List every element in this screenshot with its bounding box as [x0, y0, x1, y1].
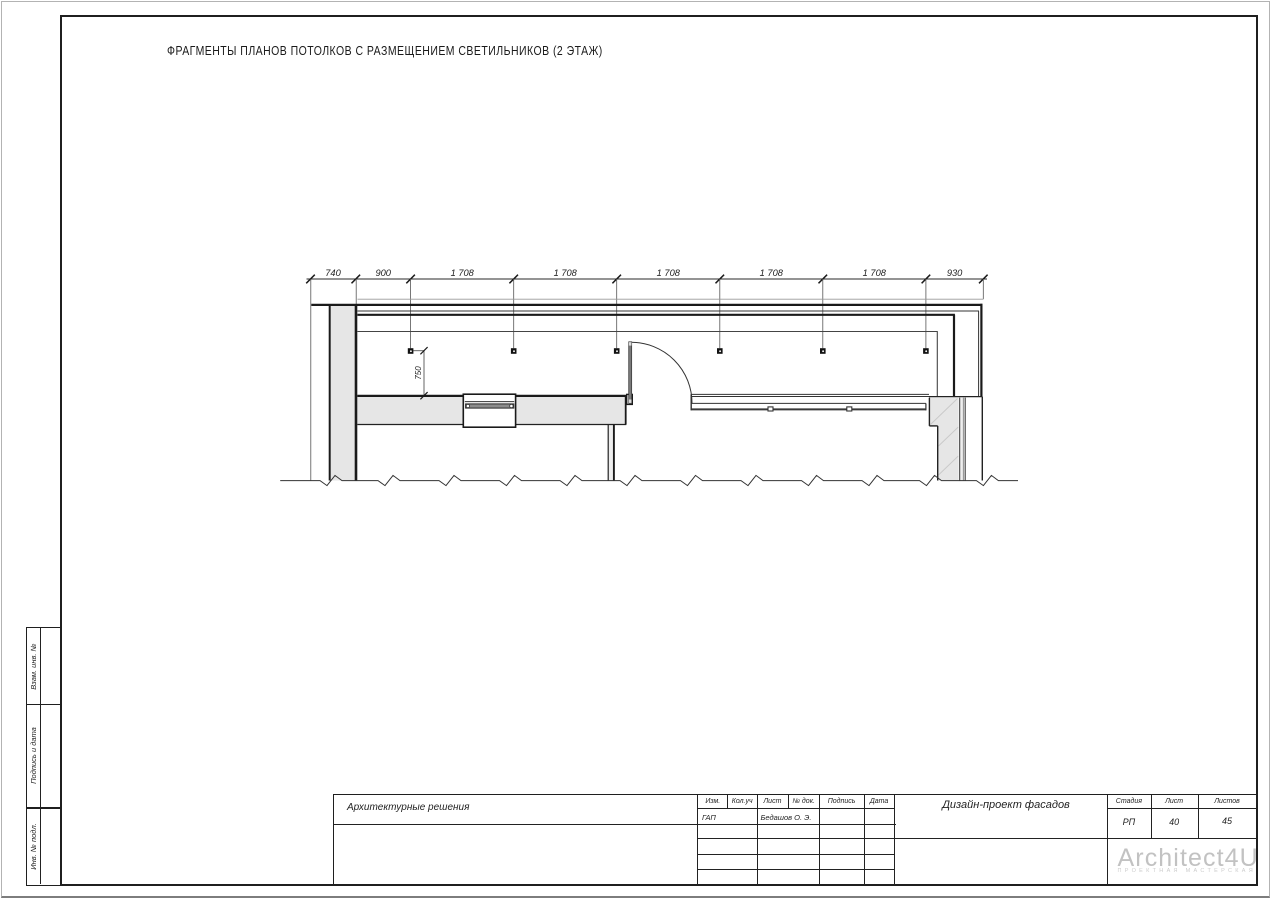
svg-text:750: 750 [414, 366, 423, 380]
svg-text:1 708: 1 708 [657, 268, 681, 278]
svg-text:1 708: 1 708 [863, 268, 887, 278]
svg-text:1 708: 1 708 [554, 268, 578, 278]
svg-text:900: 900 [375, 268, 391, 278]
svg-text:740: 740 [325, 268, 341, 278]
svg-text:1 708: 1 708 [760, 268, 784, 278]
svg-text:930: 930 [947, 268, 963, 278]
svg-text:1 708: 1 708 [451, 268, 475, 278]
